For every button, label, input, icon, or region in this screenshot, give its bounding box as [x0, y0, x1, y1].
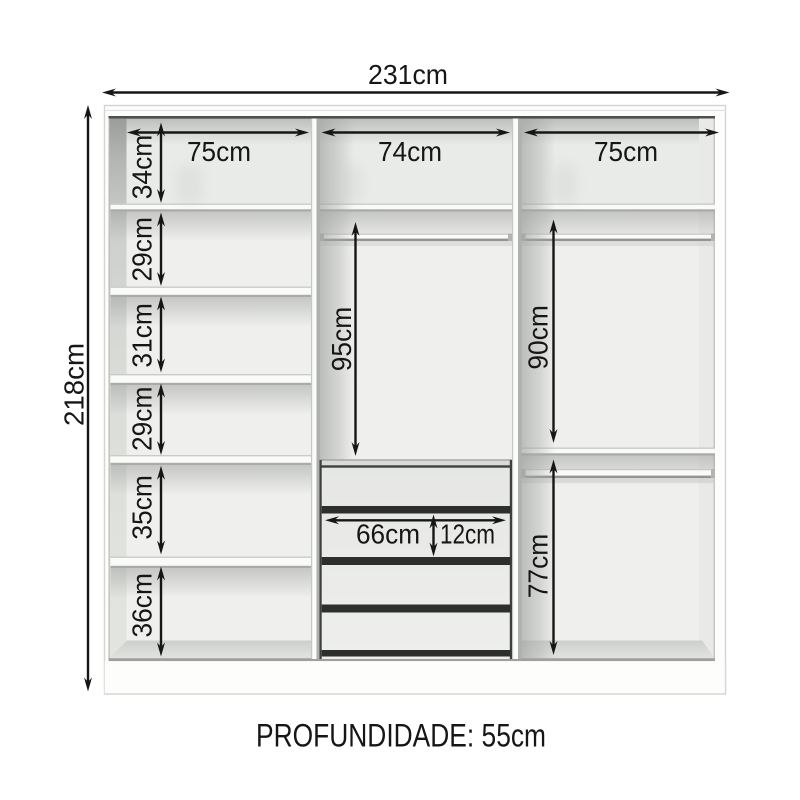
svg-text:29cm: 29cm [127, 217, 158, 281]
svg-text:218cm: 218cm [59, 343, 90, 426]
svg-text:90cm: 90cm [523, 305, 554, 370]
svg-text:77cm: 77cm [523, 534, 554, 599]
svg-text:31cm: 31cm [127, 303, 158, 368]
svg-text:74cm: 74cm [378, 136, 442, 167]
svg-text:36cm: 36cm [127, 573, 158, 638]
svg-text:75cm: 75cm [187, 136, 251, 167]
svg-text:34cm: 34cm [127, 135, 158, 200]
svg-text:231cm: 231cm [368, 59, 448, 90]
svg-text:75cm: 75cm [594, 136, 658, 167]
svg-text:35cm: 35cm [127, 475, 158, 540]
svg-text:29cm: 29cm [127, 387, 158, 452]
svg-text:66cm: 66cm [356, 519, 420, 550]
svg-text:95cm: 95cm [326, 307, 357, 372]
svg-text:12cm: 12cm [440, 519, 495, 550]
svg-text:PROFUNDIDADE: 55cm: PROFUNDIDADE: 55cm [256, 718, 546, 754]
